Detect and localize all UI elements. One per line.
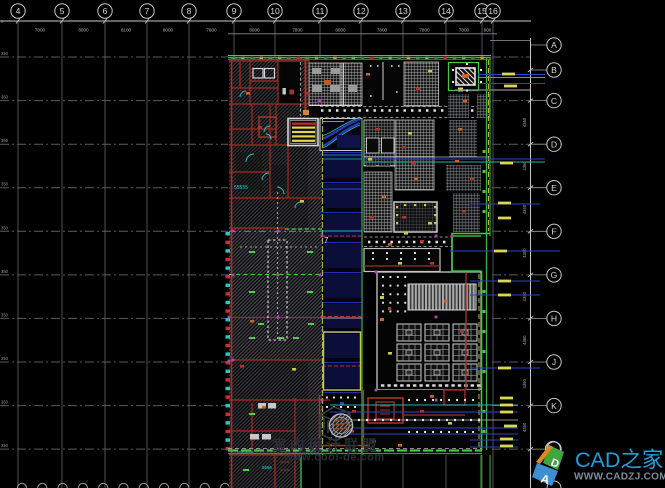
svg-text:350: 350 — [1, 269, 9, 274]
svg-text:12: 12 — [356, 6, 366, 16]
svg-text:7800: 7800 — [459, 28, 470, 33]
svg-text:K: K — [551, 401, 557, 411]
svg-text:G: G — [551, 270, 558, 280]
svg-text:350: 350 — [1, 182, 9, 187]
svg-text:350: 350 — [1, 312, 9, 317]
svg-text:4350: 4350 — [522, 422, 527, 432]
svg-text:www.cool-de.com: www.cool-de.com — [283, 452, 385, 464]
svg-text:E: E — [551, 183, 557, 193]
svg-text:WWW.CADZJ.COM: WWW.CADZJ.COM — [574, 472, 665, 483]
svg-text:350: 350 — [1, 138, 9, 143]
svg-text:F: F — [551, 227, 556, 237]
svg-text:B: B — [551, 65, 557, 75]
svg-text:350: 350 — [1, 400, 9, 405]
svg-text:13: 13 — [398, 6, 408, 16]
svg-text:H: H — [551, 314, 557, 324]
svg-text:9: 9 — [232, 6, 237, 16]
svg-text:7800: 7800 — [206, 28, 217, 33]
svg-text:350: 350 — [1, 356, 9, 361]
svg-text:4350: 4350 — [522, 248, 527, 258]
svg-text:800: 800 — [484, 28, 492, 33]
svg-text:J: J — [552, 357, 556, 367]
svg-text:4: 4 — [16, 6, 21, 16]
svg-text:4350: 4350 — [522, 291, 527, 301]
svg-text:7800: 7800 — [35, 28, 46, 33]
svg-text:6656: 6656 — [262, 465, 272, 470]
svg-text:350: 350 — [1, 51, 9, 56]
svg-text:7800: 7800 — [292, 28, 303, 33]
svg-text:5: 5 — [60, 6, 65, 16]
svg-text:C: C — [551, 96, 557, 106]
svg-text:8000: 8000 — [78, 28, 89, 33]
svg-text:7800: 7800 — [419, 28, 430, 33]
svg-text:7800: 7800 — [377, 28, 388, 33]
svg-text:11: 11 — [316, 6, 325, 16]
svg-text:4350: 4350 — [522, 378, 527, 388]
svg-text:D: D — [551, 139, 557, 149]
svg-text:55555: 55555 — [234, 185, 248, 191]
svg-text:4350: 4350 — [522, 204, 527, 214]
svg-text:7: 7 — [145, 6, 150, 16]
svg-text:16: 16 — [488, 6, 498, 16]
svg-text:10: 10 — [270, 6, 280, 16]
svg-text:4350: 4350 — [522, 117, 527, 127]
svg-text:7: 7 — [324, 236, 329, 245]
svg-text:350: 350 — [1, 443, 9, 448]
svg-text:350: 350 — [1, 95, 9, 100]
svg-text:CAD之家: CAD之家 — [575, 448, 663, 472]
svg-text:8000: 8000 — [335, 28, 346, 33]
svg-text:8: 8 — [187, 6, 192, 16]
svg-text:8000: 8000 — [163, 28, 174, 33]
svg-text:×××: ××× — [280, 468, 290, 474]
svg-text:350: 350 — [1, 225, 9, 230]
svg-text:A: A — [551, 40, 557, 50]
svg-text:8000: 8000 — [249, 28, 260, 33]
svg-text:4350: 4350 — [522, 335, 527, 345]
svg-text:6: 6 — [103, 6, 108, 16]
svg-text:8100: 8100 — [121, 28, 132, 33]
svg-text:14: 14 — [441, 6, 451, 16]
